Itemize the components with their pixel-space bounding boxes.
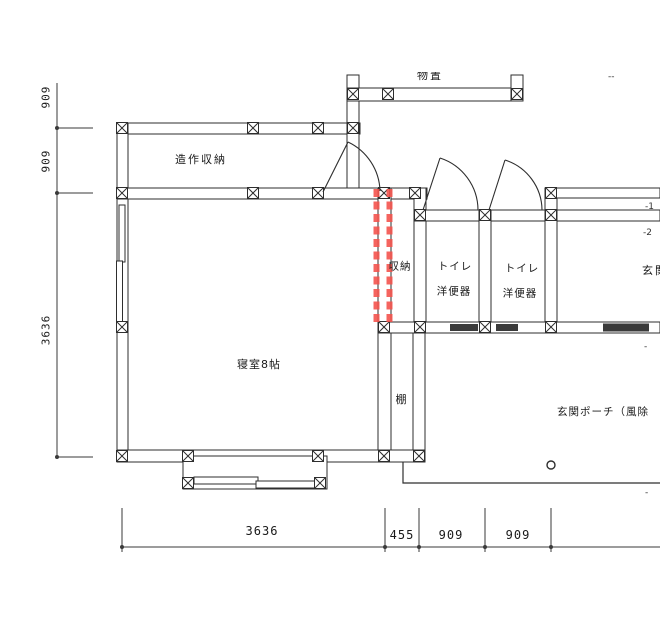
dim-bottom-3636: 3636 bbox=[246, 524, 279, 538]
wall-post bbox=[379, 322, 390, 333]
floor-plan-drawing bbox=[0, 0, 660, 635]
windows bbox=[117, 205, 323, 488]
wall-post bbox=[410, 188, 421, 199]
wall-post bbox=[383, 89, 394, 100]
bay-window-sash-left bbox=[194, 477, 258, 484]
label-toilet2-fixture: 洋便器 bbox=[503, 286, 538, 301]
wall-post bbox=[117, 188, 128, 199]
wall-post bbox=[512, 89, 523, 100]
room-label-built-in-closet: 造作収納 bbox=[175, 151, 227, 167]
wall-post bbox=[117, 451, 128, 462]
label-toilet1-fixture: 洋便器 bbox=[437, 284, 472, 299]
dim-left-909-top: 909 bbox=[40, 86, 53, 109]
wall-post bbox=[183, 478, 194, 489]
cutoff-text-right-mid: - bbox=[644, 342, 647, 352]
left-wall-window-lower bbox=[117, 261, 123, 322]
wall-closet-right bbox=[347, 101, 359, 198]
hall-door-leaf bbox=[323, 142, 348, 192]
cutoff-text-right-lower: -2 bbox=[643, 228, 652, 238]
wall-toilet-divider bbox=[479, 210, 491, 333]
wall-post bbox=[117, 123, 128, 134]
dim-bottom-909-b: 909 bbox=[506, 528, 531, 542]
wall-post bbox=[415, 322, 426, 333]
wall-post bbox=[546, 188, 557, 199]
cutoff-text-top-right: -- bbox=[608, 72, 615, 82]
wall-post bbox=[315, 478, 326, 489]
dim-bottom-909-a: 909 bbox=[439, 528, 464, 542]
toilet1-door-leaf bbox=[423, 158, 440, 210]
wall-shelf-right bbox=[413, 333, 425, 462]
partial-upper-room-label: 物置 bbox=[417, 72, 453, 87]
toilet1-door-arc bbox=[440, 158, 478, 210]
floor-plan-canvas: 909 909 3636 3636 455 909 909 造作収納 収納 トイ… bbox=[0, 0, 660, 635]
wall-post bbox=[415, 210, 426, 221]
porch-column bbox=[547, 461, 555, 469]
left-wall-window-upper bbox=[119, 205, 125, 262]
cutoff-text-bottom-right: - bbox=[645, 488, 648, 498]
wall-post bbox=[414, 451, 425, 462]
wall-post bbox=[313, 123, 324, 134]
wall-post bbox=[248, 188, 259, 199]
room-label-entrance-porch: 玄関ポーチ（風除 bbox=[557, 404, 649, 419]
room-label-toilet1: トイレ bbox=[438, 259, 473, 274]
room-label-toilet2: トイレ bbox=[505, 261, 540, 276]
cutoff-text-right-upper: -1 bbox=[645, 202, 654, 212]
wall-post bbox=[313, 451, 324, 462]
wall-upper-horizontal bbox=[347, 88, 523, 101]
toilet2-door-leaf bbox=[489, 160, 505, 210]
wall-post bbox=[183, 451, 194, 462]
room-label-entrance: 玄関 bbox=[642, 262, 660, 278]
room-label-shelf: 棚 bbox=[396, 391, 409, 407]
wall-toilet-top bbox=[414, 210, 660, 221]
wall-post bbox=[248, 123, 259, 134]
bay-window-sash-right bbox=[256, 481, 322, 488]
toilet2-door-arc bbox=[505, 160, 542, 210]
dim-left-909-mid: 909 bbox=[40, 150, 53, 173]
wall-post bbox=[480, 322, 491, 333]
room-label-storage: 収納 bbox=[389, 259, 412, 274]
wall-post bbox=[379, 451, 390, 462]
dim-left-3636: 3636 bbox=[40, 315, 53, 346]
wall-hall-top-right bbox=[545, 188, 660, 198]
porch-floor-edge bbox=[403, 462, 660, 483]
dim-bottom-455: 455 bbox=[390, 528, 415, 542]
wall-post bbox=[313, 188, 324, 199]
wall-post bbox=[117, 322, 128, 333]
wall-post bbox=[546, 210, 557, 221]
wall-post bbox=[348, 123, 359, 134]
wall-post bbox=[348, 89, 359, 100]
wall-post bbox=[546, 322, 557, 333]
wall-post bbox=[480, 210, 491, 221]
room-label-bedroom: 寝室8帖 bbox=[237, 356, 281, 372]
